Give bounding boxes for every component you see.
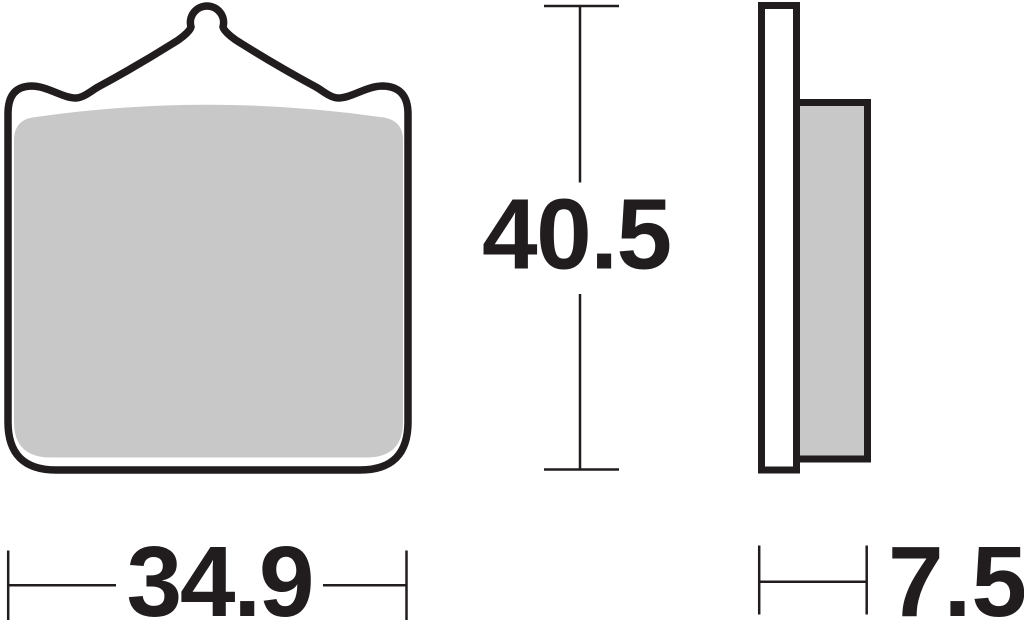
svg-text:40.5: 40.5: [482, 179, 671, 291]
svg-text:34.9: 34.9: [127, 526, 313, 625]
svg-text:7.5: 7.5: [888, 526, 1024, 625]
